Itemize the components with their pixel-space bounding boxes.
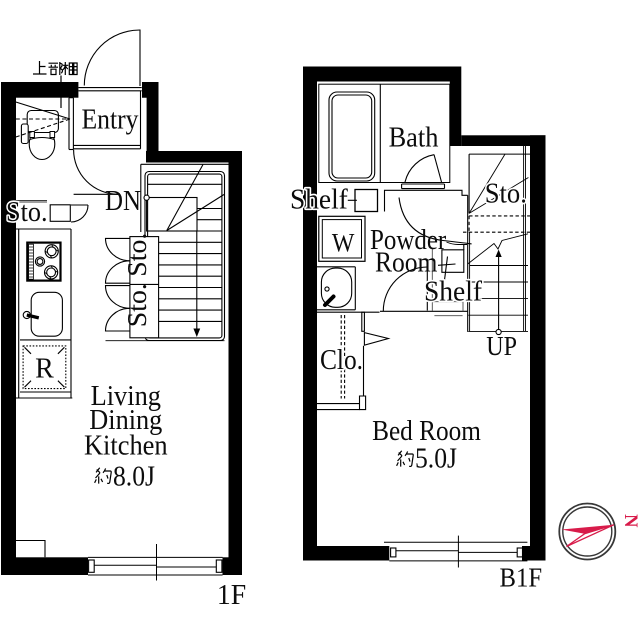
svg-text:8.0J: 8.0J [113,461,155,492]
svg-text:Shelf: Shelf [424,277,483,308]
svg-text:Room: Room [375,247,438,278]
svg-text:Clo.: Clo. [320,345,363,376]
svg-text:Entry: Entry [82,103,139,135]
svg-text:Bath: Bath [389,123,439,154]
svg-text:Sto.: Sto. [122,283,152,327]
svg-text:W: W [332,228,355,257]
svg-text:Bed Room: Bed Room [372,416,481,447]
svg-text:1F: 1F [217,580,246,611]
svg-text:B1F: B1F [500,561,543,592]
svg-text:R: R [35,354,54,385]
svg-text:N: N [620,514,640,528]
svg-text:DN: DN [105,185,141,217]
svg-text:UP: UP [486,331,517,361]
svg-text:Sto.: Sto. [6,196,48,228]
svg-text:Sto.: Sto. [485,178,527,210]
svg-text:Kitchen: Kitchen [84,430,168,461]
svg-text:Sto.: Sto. [122,233,152,277]
svg-text:5.0J: 5.0J [415,444,457,475]
svg-text:Shelf: Shelf [290,185,348,216]
